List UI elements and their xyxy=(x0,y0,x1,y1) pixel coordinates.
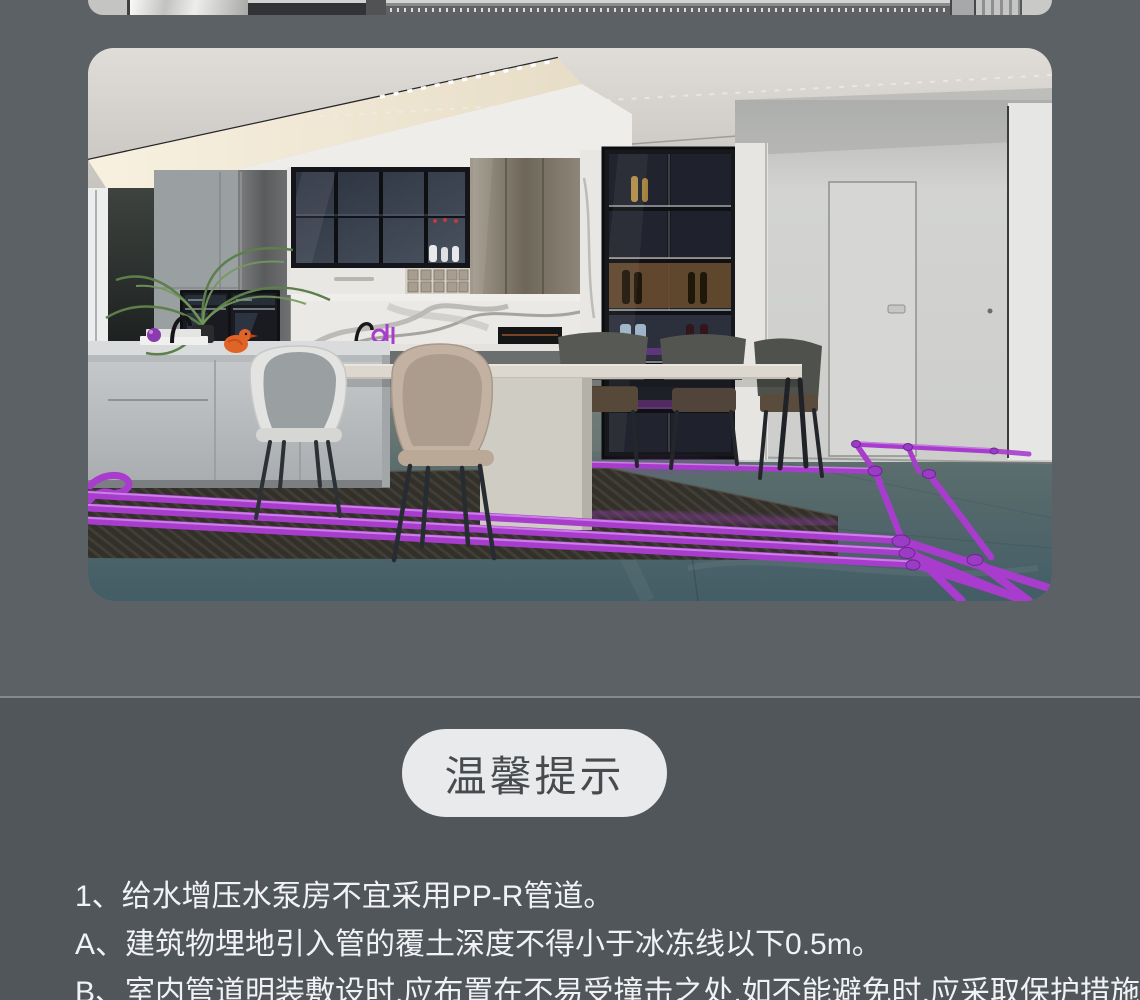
sliver-dark-block xyxy=(248,0,366,15)
wall-pillar xyxy=(735,143,768,460)
tip-badge: 温馨提示 xyxy=(402,729,667,817)
door-handle xyxy=(888,305,905,313)
note-line: B、室内管道明装敷设时,应布置在不易受撞击之处,如不能避免时,应采取保护措施。 xyxy=(75,978,1140,1000)
entry-door xyxy=(829,182,916,456)
purple-ornament xyxy=(147,328,161,342)
note-line: A、建筑物埋地引入管的覆土深度不得小于冰冻线以下0.5m。 xyxy=(75,930,1140,960)
previous-image-sliver xyxy=(88,0,1052,15)
champagne-cabinets xyxy=(470,158,580,294)
kitchen-island xyxy=(88,341,390,488)
sliver-concrete-right xyxy=(1020,0,1052,15)
glass-cabinet xyxy=(291,167,470,268)
tip-badge-label: 温馨提示 xyxy=(444,743,624,804)
sliver-gap xyxy=(366,0,386,15)
product-detail-page: 温馨提示 1、给水增压水泵房不宜采用PP-R管道。 A、建筑物埋地引入管的覆土深… xyxy=(0,0,1140,1000)
sliver-striped-panel xyxy=(976,0,1020,15)
note-line: 1、给水增压水泵房不宜采用PP-R管道。 xyxy=(75,882,1140,912)
sliver-silver-curve xyxy=(130,0,248,15)
notes-list: 1、给水增压水泵房不宜采用PP-R管道。 A、建筑物埋地引入管的覆土深度不得小于… xyxy=(75,882,1140,1000)
kitchen-piping-photo xyxy=(88,48,1052,601)
sliver-seam xyxy=(950,0,976,15)
wine-cabinet xyxy=(588,148,748,475)
sliver-vent-grille xyxy=(386,0,950,15)
wine-rack xyxy=(405,268,470,294)
kitchen-scene xyxy=(88,48,1052,601)
sliver-concrete-left xyxy=(88,0,130,15)
